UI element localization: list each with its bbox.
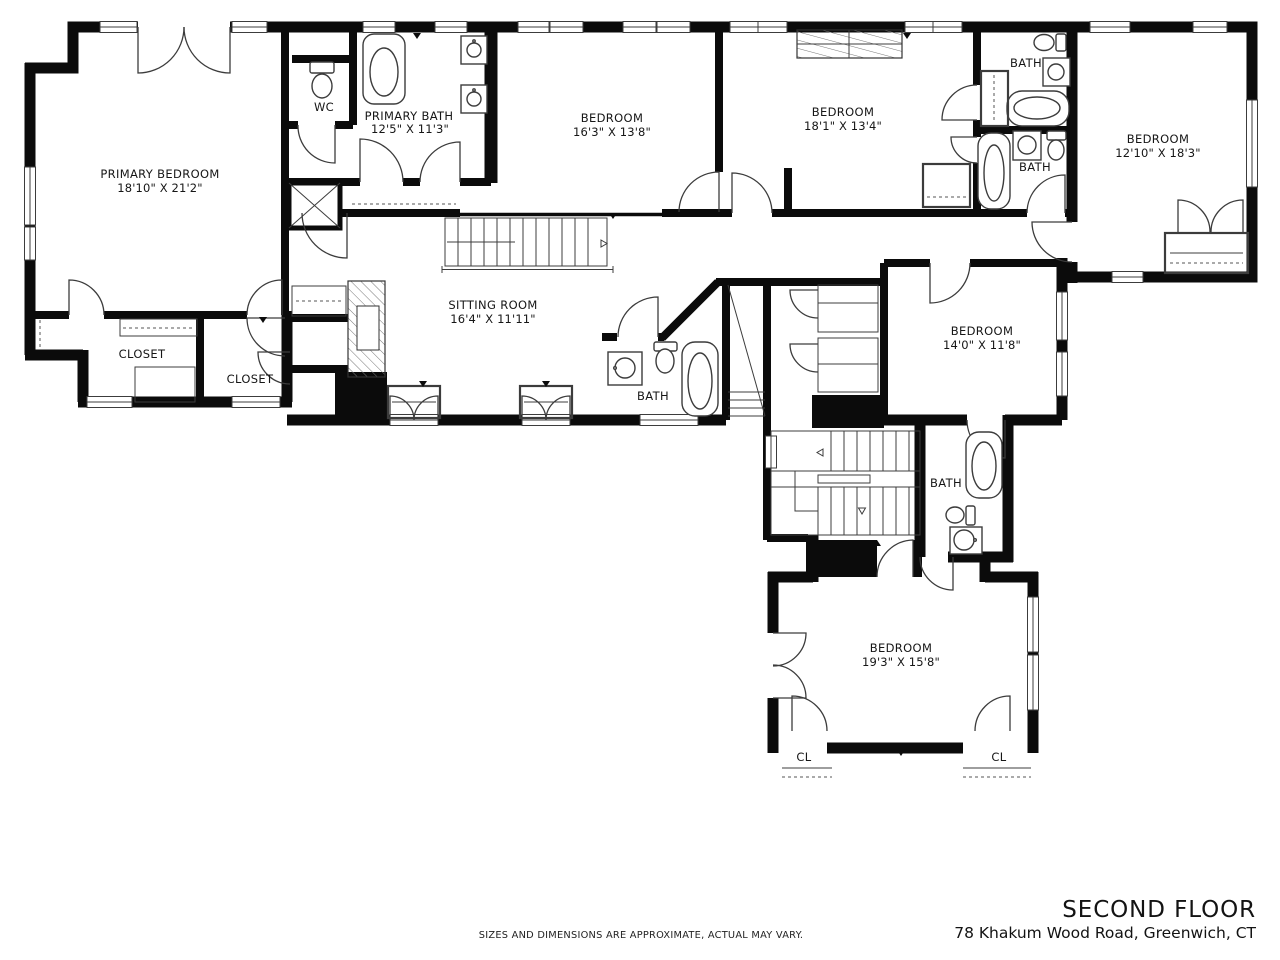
- footer: SIZES AND DIMENSIONS ARE APPROXIMATE, AC…: [479, 897, 1257, 942]
- room-label-bedroom-1210: BEDROOM: [1127, 132, 1189, 146]
- bath1-toilet-icon: [1034, 34, 1066, 51]
- room-label-closet-2: CLOSET: [227, 372, 274, 386]
- center-bath-toilet-icon: [654, 342, 677, 373]
- hatch-shaft: [348, 281, 385, 377]
- mid-bath-sink-icon: [950, 527, 982, 554]
- floor-plan: PRIMARY BEDROOM 18'10" X 21'2" WC PRIMAR…: [0, 0, 1280, 960]
- floor-title: SECOND FLOOR: [1062, 897, 1256, 923]
- room-label-primary-bath: PRIMARY BATH: [365, 109, 454, 123]
- room-label-closet-1: CLOSET: [119, 347, 166, 361]
- bath1-tub-icon: [1007, 91, 1069, 126]
- room-label-sitting-room: SITTING ROOM: [448, 298, 537, 312]
- bath2-tub-icon: [978, 133, 1010, 209]
- stairs-void: [728, 285, 765, 416]
- wc-toilet-icon: [310, 62, 334, 98]
- room-label-bedroom-163: BEDROOM: [581, 111, 643, 125]
- room-label-cl-left: CL: [796, 750, 811, 764]
- shaft-x-box: [289, 183, 340, 228]
- room-label-bath-mid: BATH: [930, 476, 962, 490]
- room-label-bath-2: BATH: [1019, 160, 1051, 174]
- mid-bath-toilet-icon: [946, 506, 975, 525]
- room-label-wc: WC: [314, 100, 334, 114]
- center-bath-tub-icon: [682, 342, 718, 416]
- room-label-bath-center: BATH: [637, 389, 669, 403]
- room-label-cl-right: CL: [991, 750, 1006, 764]
- room-dims-sitting-room: 16'4" X 11'11": [450, 312, 535, 326]
- room-dims-primary-bath: 12'5" X 11'3": [371, 122, 449, 136]
- floorplan-page: PRIMARY BEDROOM 18'10" X 21'2" WC PRIMAR…: [0, 0, 1280, 960]
- primary-bath-sink-icon-2: [461, 85, 487, 113]
- primary-bath-tub-icon: [363, 34, 405, 104]
- room-label-bath-1: BATH: [1010, 56, 1042, 70]
- room-dims-bedroom-181: 18'1" X 13'4": [804, 119, 882, 133]
- bath2-sink-icon: [1013, 131, 1041, 160]
- center-bath-sink-icon: [608, 352, 642, 385]
- bath1-sink-icon: [1043, 58, 1070, 86]
- room-dims-primary-bedroom: 18'10" X 21'2": [117, 181, 202, 195]
- mid-bath-tub-icon: [966, 432, 1002, 498]
- stairs-upper: [442, 218, 613, 273]
- room-dims-bedroom-140: 14'0" X 11'8": [943, 338, 1021, 352]
- room-dims-bedroom-193: 19'3" X 15'8": [862, 655, 940, 669]
- primary-bath-sink-icon: [461, 36, 487, 64]
- address-text: 78 Khakum Wood Road, Greenwich, CT: [954, 924, 1256, 942]
- room-label-bedroom-140: BEDROOM: [951, 324, 1013, 338]
- room-dims-bedroom-1210: 12'10" X 18'3": [1115, 146, 1200, 160]
- disclaimer-text: SIZES AND DIMENSIONS ARE APPROXIMATE, AC…: [479, 930, 803, 941]
- hatch-chimney: [797, 30, 902, 58]
- room-label-primary-bedroom: PRIMARY BEDROOM: [100, 167, 219, 181]
- bath2-toilet-icon: [1047, 131, 1066, 160]
- room-label-bedroom-193: BEDROOM: [870, 641, 932, 655]
- room-label-bedroom-181: BEDROOM: [812, 105, 874, 119]
- room-dims-bedroom-163: 16'3" X 13'8": [573, 125, 651, 139]
- stairs-main: [771, 431, 920, 535]
